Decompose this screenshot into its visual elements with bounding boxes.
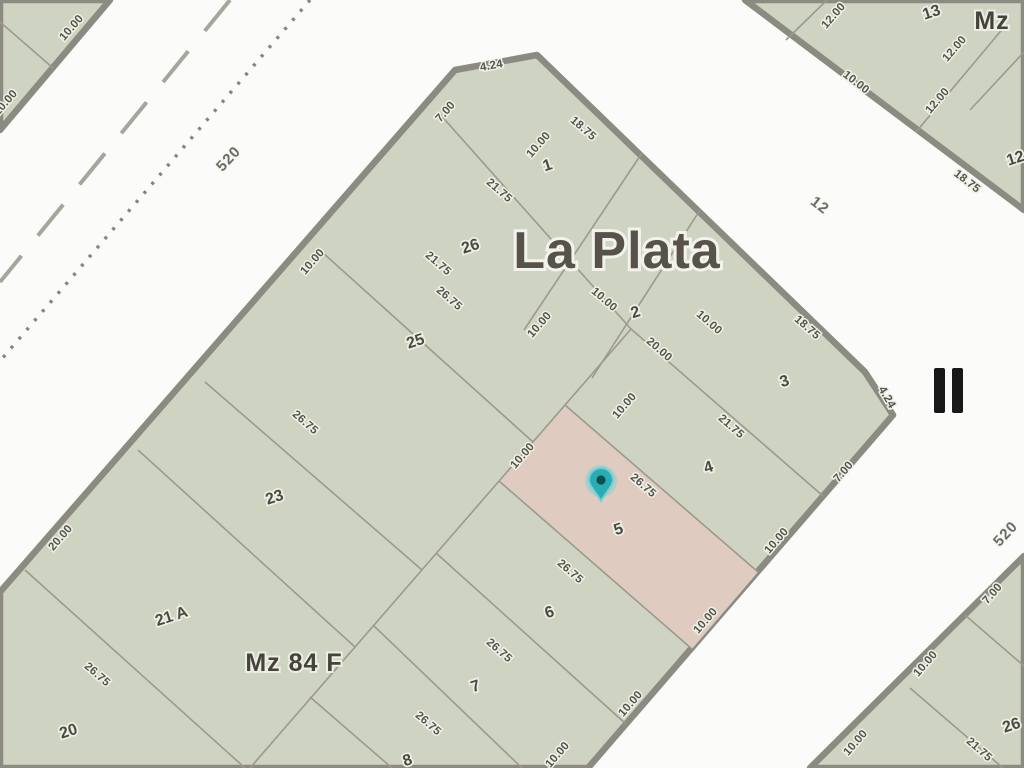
adjacent-block-title: Mz <box>974 7 1009 35</box>
city-title: La Plata <box>513 222 720 280</box>
block-title: Mz 84 F <box>245 649 342 677</box>
cadastral-map-viewport[interactable]: 7.00 10.00 20.00 4.24 4.24 18.75 18.75 7… <box>0 0 1024 768</box>
map-canvas: 7.00 10.00 20.00 4.24 4.24 18.75 18.75 7… <box>0 0 1024 768</box>
